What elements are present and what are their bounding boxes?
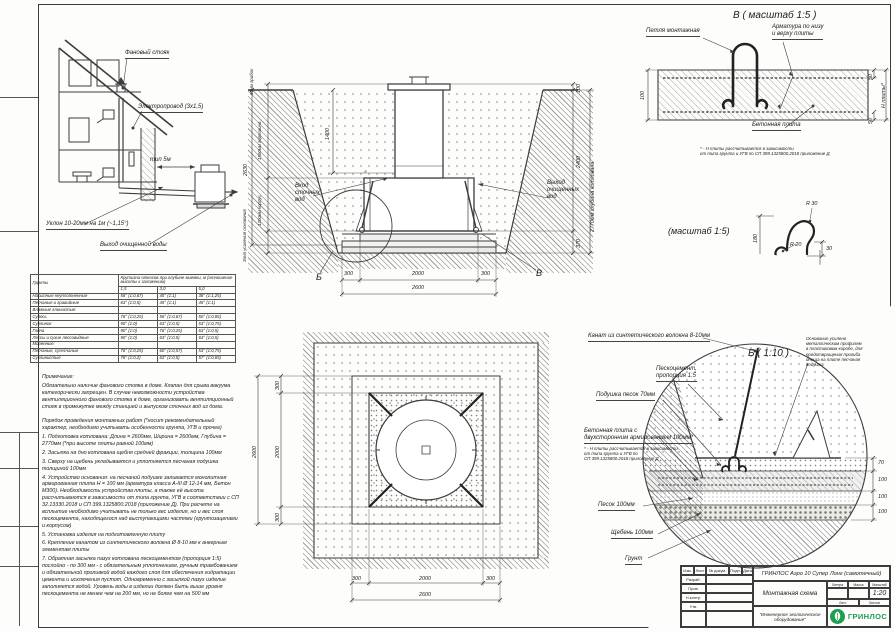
plan-dim-300-top: 300 [275, 381, 281, 390]
row-name: Лессы и сухие лессовидные [31, 334, 119, 341]
row-nkontr: Н.контр. [681, 593, 706, 602]
table-row: Лессы и сухие лессовидные90° (1:0)63° (1… [31, 334, 236, 341]
slope-table: Грунты Крутизна откосов при глубине выем… [30, 274, 236, 363]
zone-label: Зона усиления основания [242, 209, 247, 262]
spacer [42, 412, 240, 416]
detail-v-drawing [633, 8, 895, 203]
margin-line [0, 231, 38, 232]
notes-item: 4. Устройство основания: на песчаной под… [42, 475, 240, 530]
dim-cap: 60мм грибок [249, 69, 254, 95]
slope-label: Уклон 10-20мм на 1м (~1,15°) [46, 221, 129, 230]
table-col-50: 5,0 [197, 286, 236, 293]
empty-cell [706, 611, 753, 627]
grinlos-logo-icon [830, 609, 845, 624]
plan-dim-2600-bot: 2600 [419, 592, 431, 598]
cell: 45° (1:1) [158, 300, 197, 307]
dim-100-sand: 100 [878, 494, 887, 500]
cell: 63° (1:0,5) [119, 300, 158, 307]
plan-dim-300-bot: 300 [275, 513, 281, 522]
row-name: Суглинок [31, 321, 119, 328]
empty-cell [706, 575, 753, 584]
cell: 63° (1:0,5) [158, 334, 197, 341]
dim-2000: 2000 [412, 271, 424, 277]
dim-2600: 2600 [412, 285, 424, 291]
cell: 38° (1:1,25) [197, 293, 236, 300]
row-prov: Пров. [681, 584, 706, 593]
cell: 50° (1:0,85) [197, 314, 236, 321]
table-row: Суглинок90° (1:0)63° (1:0,5)53° (1:0,75) [31, 321, 236, 328]
litera-value [827, 588, 848, 599]
cell: 56° (1:0,67) [119, 293, 158, 300]
clean-water-out-label: Выход очищенной воды [100, 242, 167, 251]
plan-view-drawing [248, 328, 583, 628]
notes-item: 5. Установка изделия на подготовленную п… [42, 532, 240, 539]
row-name: Влажные глинистые: [31, 307, 119, 314]
plan-dim-2000-left: 2000 [275, 446, 281, 458]
notes-item: 2. Засыпка на дно котлована щебня средне… [42, 450, 240, 457]
house-section-drawing [45, 32, 240, 267]
plate-label: Бетонная плита с двухсторонним армирован… [584, 428, 693, 444]
dim-1400: 1400 [325, 128, 331, 140]
table-row: Супесь76° (1:0,25)56° (1:0,67)50° (1:0,8… [31, 314, 236, 321]
cell: 53° (1:0,75) [197, 321, 236, 328]
dim-30: 30 [826, 246, 832, 252]
marker-v: В [536, 268, 542, 279]
cell: 53° (1:0,75) [197, 348, 236, 355]
cell: 76° (1:0,25) [119, 314, 158, 321]
cell: 57° (1:0,65) [197, 355, 236, 362]
cell: 63° (1:0,5) [197, 328, 236, 335]
scale-value: 1:20 [869, 588, 890, 599]
dim-180: 180 [753, 234, 759, 243]
title-block: Изм. Лист № докум. Подп. Дата Разраб. Пр… [680, 565, 891, 628]
sandcement-label: Пескоцемент, пропорция 1:5 [656, 366, 697, 382]
rope-label: Канат из синтетического волокна 8-10мм [588, 333, 710, 342]
dim-300-a: 300 [344, 271, 353, 277]
detail-b-footnote: * - Н плиты рассчитывается в зависимости… [584, 446, 678, 462]
drawing-sheet: Фановый стояк Электропровод (3х1,5) тип … [0, 0, 895, 632]
table-row: Насыпные неуплотненные56° (1:0,67)45° (1… [31, 293, 236, 300]
plan-dim-300-b: 300 [486, 576, 495, 582]
table-col-30: 3,0 [158, 286, 197, 293]
dim-pit-depth: 2770мм глубина котлована [590, 162, 596, 232]
table-row: Песчаные и гравийные63° (1:0,5)45° (1:1)… [31, 300, 236, 307]
row-utv: Утв. [681, 602, 706, 611]
sand-label: Песок 100мм [598, 502, 635, 511]
empty-cell [706, 584, 753, 593]
detail-v-footnote: * - Н плиты рассчитывается в зависимости… [700, 146, 830, 156]
cell: 76° (1:0,25) [119, 348, 158, 355]
row-name: Насыпные неуплотненные [31, 293, 119, 300]
table-header: Крутизна откосов при глубине выемки, м (… [119, 275, 236, 287]
cell: 56° (1:0,67) [158, 314, 197, 321]
marker-b: Б [316, 272, 322, 283]
notes-item: 1. Подготовка котлована: Длина = 2600мм,… [42, 434, 240, 448]
empty-cell [706, 602, 753, 611]
cushion-label: Подушка песок 70мм [596, 392, 655, 401]
h-litera: Литера [827, 581, 848, 588]
product-name: ГРИНЛОС Аэро 10 Супер Лонг (самотечный) [753, 566, 890, 581]
rebar-label: Арматура по низу и верху плиты [772, 24, 823, 40]
cell: 45° (1:1) [197, 300, 236, 307]
dim-body: 1200мм корпус [257, 195, 262, 226]
cell: 76° (1:0,25) [158, 328, 197, 335]
mounting-loop-label: Петля монтажная [646, 28, 700, 37]
dim-50-top: 50 [868, 74, 874, 80]
row-name: Суглинистые [31, 355, 119, 362]
notes-item: 6. Крепление канатом из синтетического в… [42, 540, 240, 554]
dim-slab-100: 100 [640, 91, 646, 100]
table-col-15: 1,5 [119, 286, 158, 293]
row-name: Моренные: [31, 341, 119, 348]
notes-paragraph: Порядок проведения монтажных работ (*нос… [42, 418, 240, 432]
cell: 90° (1:0) [119, 328, 158, 335]
dim-70: 70 [878, 460, 884, 466]
cell: 63° (1:0,5) [197, 334, 236, 341]
col-sign: Подп. [729, 566, 742, 575]
cell: 90° (1:0) [119, 321, 158, 328]
notes-item: 3. Сверху на щебень укладывается и уплот… [42, 459, 240, 473]
dim-2400: 2400 [576, 156, 582, 168]
company-tagline: "Инженерное экологическое оборудование" [753, 606, 827, 627]
empty-cell [706, 593, 753, 602]
margin-line [19, 432, 20, 626]
cell [119, 307, 158, 314]
row-name: Песчаные, супесчаные [31, 348, 119, 355]
cell: 63° (1:0,5) [158, 321, 197, 328]
row-name: Супесь [31, 314, 119, 321]
table-row: Влажные глинистые: [31, 307, 236, 314]
title-block-main: ГРИНЛОС Аэро 10 Супер Лонг (самотечный) … [753, 566, 890, 627]
dim-50-bot: 50 [868, 118, 874, 124]
dim-100-plate: 100 [878, 477, 887, 483]
vent-stack-label: Фановый стояк [125, 50, 169, 59]
plan-dim-2000-bot: 2000 [419, 576, 431, 582]
detail-b-title: Б ( 1:10 ) [748, 348, 789, 360]
h-sheets: Листов [859, 599, 891, 606]
concrete-slab-label: Бетонная плита [752, 122, 801, 131]
margin-line [0, 97, 38, 98]
massa-value [848, 588, 869, 599]
row-razrab: Разраб. [681, 575, 706, 584]
cell [158, 307, 197, 314]
dim-370: 370 [576, 239, 582, 248]
table-row: Суглинистые78° (1:0,2)63° (1:0,5)57° (1:… [31, 355, 236, 362]
inlet-label: Вход сточных вод [295, 183, 320, 204]
dim-100-right: 100 [576, 84, 582, 93]
h-scale: Масштаб [869, 581, 890, 588]
dim-100-gravel: 100 [878, 509, 887, 515]
dim-2630: 2630 [243, 164, 249, 176]
outlet-label: Выход очищенных вод [547, 180, 579, 201]
table-row: Песчаные, супесчаные76° (1:0,25)60° (1:0… [31, 348, 236, 355]
main-section-drawing [238, 48, 603, 303]
typ-5m-label: тип 5м [150, 157, 171, 164]
dim-neck: 1500мм горловина [257, 122, 262, 160]
cell: 78° (1:0,2) [119, 355, 158, 362]
title-block-left: Изм. Лист № докум. Подп. Дата Разраб. Пр… [681, 566, 753, 627]
logo-cell: ГРИНЛОС [827, 606, 890, 627]
dim-300-b: 300 [481, 271, 490, 277]
empty-cell [681, 611, 706, 627]
dim-h-plity: Н плиты* [881, 83, 887, 108]
soil-label: Грунт [625, 556, 642, 565]
doc-type: Монтажная схема [753, 581, 827, 606]
cell: 60° (1:0,57) [158, 348, 197, 355]
notes-title: Примечание: [42, 374, 240, 381]
plan-dim-2600-left: 2600 [252, 446, 258, 458]
plan-dim-300-a: 300 [352, 576, 361, 582]
dim-r30: R 30 [806, 201, 817, 207]
detail-v-title: В ( масштаб 1:5 ) [733, 10, 816, 22]
col-list: Лист [694, 566, 706, 575]
cell [158, 341, 197, 348]
reinforced-base-note: Основание усилено металлическим профилем… [806, 336, 863, 367]
cell: 45° (1:1) [158, 293, 197, 300]
h-sheet: Лист [827, 599, 859, 606]
table-row: Моренные: [31, 341, 236, 348]
electric-label: Электропровод (3х1,5) [138, 104, 203, 113]
table-row: Глина90° (1:0)76° (1:0,25)63° (1:0,5) [31, 328, 236, 335]
cell [119, 341, 158, 348]
col-date: Дата [742, 566, 753, 575]
h-massa: Масса [848, 581, 869, 588]
col-izm: Изм. [681, 566, 694, 575]
row-name: Песчаные и гравийные [31, 300, 119, 307]
gravel-label: Щебень 100мм [611, 530, 653, 539]
cell [197, 341, 236, 348]
dim-r20: R 20 [790, 242, 801, 248]
row-name: Глина [31, 328, 119, 335]
hook-detail-title: (масштаб 1:5) [668, 226, 730, 237]
table-col-soil: Грунты [31, 275, 119, 294]
notes-block: Примечание: Обязательно наличие фанового… [42, 374, 240, 599]
notes-paragraph: Обязательно наличие фанового стояка в до… [42, 383, 240, 411]
col-doc: № докум. [706, 566, 729, 575]
notes-item: 7. Обратная засыпка пазух котлована песк… [42, 556, 240, 597]
cell: 90° (1:0) [119, 334, 158, 341]
brand-name: ГРИНЛОС [848, 612, 887, 621]
cell: 63° (1:0,5) [158, 355, 197, 362]
cell [197, 307, 236, 314]
